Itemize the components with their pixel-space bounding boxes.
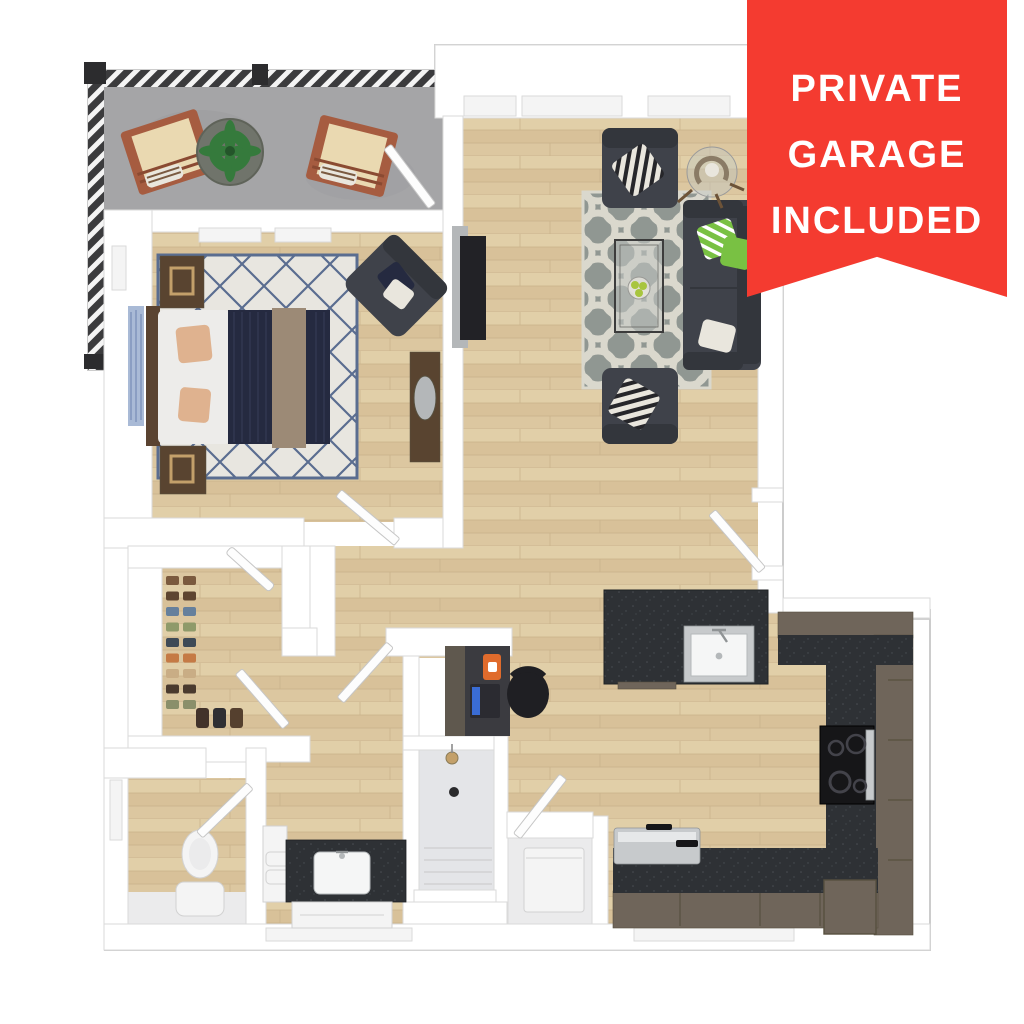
- armchair-bottom: [602, 368, 678, 444]
- shoe: [166, 607, 179, 616]
- shower-drain: [449, 787, 459, 797]
- bed-pillow-1: [175, 324, 213, 363]
- shoe: [166, 592, 179, 601]
- laptop-screen: [472, 687, 480, 715]
- cabinet-north: [778, 612, 913, 638]
- vanity-faucet: [339, 853, 345, 859]
- range-handle: [866, 730, 874, 800]
- window-bedroom-1: [199, 228, 261, 242]
- shoe: [166, 669, 179, 678]
- planter: [197, 119, 263, 185]
- tv: [460, 236, 486, 340]
- wall-shower-north: [403, 736, 507, 750]
- shoe: [166, 654, 179, 663]
- window-south-2: [634, 928, 794, 941]
- toilet-lid: [189, 838, 211, 870]
- shoe: [183, 638, 196, 647]
- window-bedroom-west: [112, 246, 126, 290]
- apple-3: [635, 289, 643, 297]
- shoe: [183, 576, 196, 585]
- bed-pillow-2: [178, 387, 212, 424]
- wall-closet-west: [128, 548, 162, 748]
- appliance-handle-2: [676, 840, 698, 847]
- toilet-tank: [176, 882, 224, 916]
- shoe: [183, 700, 196, 709]
- private-garage-ribbon: PRIVATE GARAGE INCLUDED: [747, 0, 1007, 297]
- appliance-handle-1: [646, 824, 672, 830]
- boot: [230, 708, 243, 728]
- railing-post-corner: [84, 62, 106, 84]
- plant-center: [225, 146, 235, 156]
- wall-art-blue: [128, 306, 144, 426]
- railing-left: [88, 70, 104, 370]
- sink-drain: [716, 653, 723, 660]
- window-living-1: [464, 96, 516, 116]
- wall-west-lower: [104, 548, 128, 928]
- counter-north: [778, 635, 913, 665]
- shoe: [183, 685, 196, 694]
- shoe: [166, 576, 179, 585]
- coffee-table: [615, 240, 663, 332]
- wall-laundry-east: [592, 816, 608, 928]
- island-base: [618, 682, 676, 689]
- desk-orange-center: [488, 662, 497, 672]
- shoe: [166, 623, 179, 632]
- sofa-arm-bottom: [683, 352, 743, 370]
- lamp-bowl: [705, 163, 719, 177]
- dresser-tray: [414, 376, 436, 420]
- armchair-top: [602, 128, 678, 208]
- railing-post-mid: [252, 64, 268, 85]
- range: [820, 726, 874, 804]
- wall-bath-north-left: [282, 628, 317, 656]
- washer-closet: [524, 848, 584, 912]
- wall-toilet-north: [104, 748, 206, 778]
- nightstand-top: [160, 256, 204, 308]
- bed-headboard: [146, 306, 160, 446]
- desk-cabinet: [445, 646, 465, 736]
- shoe: [183, 623, 196, 632]
- shoe: [183, 654, 196, 663]
- window-bedroom-2: [275, 228, 331, 242]
- end-cabinet: [824, 880, 876, 934]
- apple-1: [631, 281, 639, 289]
- wall-bedroom-south-right: [394, 518, 443, 548]
- small-appliance: [614, 824, 700, 864]
- shoe: [183, 607, 196, 616]
- nightstand-bottom: [160, 446, 206, 494]
- window-toilet: [110, 780, 122, 840]
- floorplan-image: PRIVATE GARAGE INCLUDED: [0, 0, 1024, 1024]
- shoe: [166, 685, 179, 694]
- sofa-arm-top: [683, 200, 743, 218]
- toilet-room-floor: [125, 778, 246, 892]
- wall-bedroom-south-left: [104, 518, 304, 548]
- shoe: [166, 638, 179, 647]
- railing-post-end: [84, 354, 105, 369]
- window-south-1: [266, 928, 412, 941]
- entry-jamb-top: [752, 488, 783, 502]
- ribbon-line-2: GARAGE: [788, 122, 967, 188]
- boot: [213, 708, 226, 728]
- window-living-2: [522, 96, 622, 116]
- kitchen-island: [604, 590, 768, 689]
- window-living-3: [648, 96, 730, 116]
- shoe: [183, 592, 196, 601]
- shoe: [166, 700, 179, 709]
- shower-head: [446, 752, 458, 764]
- ribbon-line-3: INCLUDED: [771, 188, 983, 254]
- boot: [196, 708, 209, 728]
- bed-runner: [272, 308, 306, 448]
- ribbon-line-1: PRIVATE: [790, 56, 963, 122]
- shoe: [183, 669, 196, 678]
- apple-2: [639, 282, 647, 290]
